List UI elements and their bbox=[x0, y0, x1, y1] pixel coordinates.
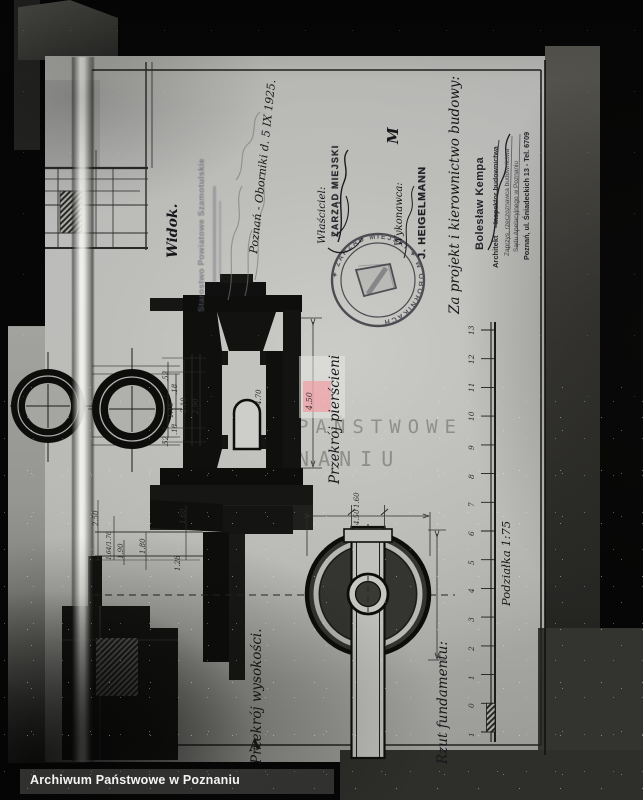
stamp-architect-title3: Zaprzys. rzeczoznawca budownictwa bbox=[505, 128, 512, 256]
dim-value: 1.90 bbox=[118, 539, 125, 559]
note-credit: Za projekt i kierownictwo budowy: bbox=[449, 62, 463, 314]
dim-value: 1.46 bbox=[168, 396, 175, 418]
dim-highlighted: 4.50 bbox=[306, 384, 314, 410]
archival-scan-page: PAŃSTWOWE ZNANIU bbox=[0, 0, 643, 800]
ruler-tick-label: 12 bbox=[468, 348, 476, 364]
label-foundation-plan: Rzut fundamentu: bbox=[437, 596, 451, 764]
ruler-tick-label: 5 bbox=[468, 549, 476, 565]
dim-value: .18 bbox=[172, 377, 179, 395]
stamp-architect-title2: Inspektor budownictwa bbox=[493, 124, 500, 224]
ruler-tick-label: 10 bbox=[468, 405, 476, 421]
dim-niche: 4.70 bbox=[256, 383, 263, 405]
ruler-tick-label: 3 bbox=[468, 606, 476, 622]
dim-value: 2.90 bbox=[193, 392, 200, 414]
paper-fold-highlight bbox=[72, 57, 94, 762]
dim-value: 1.28 bbox=[175, 551, 182, 571]
ruler-tick-label: 4 bbox=[468, 577, 476, 593]
ruler-tick-label: 13 bbox=[468, 319, 476, 335]
stamp-architect-title1: Architekt bbox=[492, 224, 500, 268]
label-rings-section: Przekrój pierścieni bbox=[329, 306, 343, 484]
dim-value: 2.10 bbox=[181, 391, 188, 413]
ruler-tick-label: 11 bbox=[468, 376, 476, 392]
dim-value: .52 bbox=[163, 364, 170, 382]
ruler-tick-label: 7 bbox=[468, 491, 476, 507]
stamp-starostwo-subline bbox=[219, 201, 221, 279]
dim-plan-outer: 4.50 bbox=[354, 508, 361, 525]
dim-value: .18 bbox=[172, 417, 179, 435]
dim-value: 1.64/1.76 bbox=[107, 518, 113, 560]
ruler-tick-label: 2 bbox=[468, 635, 476, 651]
round-seal-stamp: ✦ ZARZĄD MIEJSKI ✦ W OBORNIKACH bbox=[330, 231, 426, 327]
ruler-tick-label: 8 bbox=[468, 463, 476, 479]
ruler-tick-label: 9 bbox=[468, 434, 476, 450]
stamp-starostwo-subline bbox=[213, 186, 216, 282]
stamp-architect-address: Poznań, ul. Śniadeckich 13 - Tel. 6709 bbox=[523, 104, 530, 260]
dim-value: .52 bbox=[163, 429, 170, 447]
stamp-architect-name: Bolesław Kempa bbox=[475, 132, 486, 250]
dim-value: 1.60 bbox=[180, 504, 187, 524]
ruler-tick-label: 6 bbox=[468, 520, 476, 536]
archive-caption-text: Archiwum Państwowe w Poznaniu bbox=[30, 773, 240, 787]
ruler-tick-label: 0 bbox=[468, 692, 476, 708]
ruler-tick-label: 1 bbox=[468, 664, 476, 680]
label-contractor: Wykonawca: bbox=[395, 170, 405, 246]
dim-value: 1.80 bbox=[140, 534, 147, 554]
label-scale: Podziałka 1:75 bbox=[501, 490, 513, 606]
label-owner: Właściciel: bbox=[317, 164, 328, 244]
ruler-tick-label: 1 bbox=[468, 721, 476, 737]
ring-sections-drawing bbox=[10, 348, 182, 472]
label-view: Widok. bbox=[166, 196, 180, 258]
stamp-starostwo: Starostwo Powiatowe Szamotulskie bbox=[197, 142, 206, 312]
dim-value: 2.50 bbox=[93, 504, 100, 526]
stamp-architect-title4: Sądu Apelacyjnego w Poznaniu bbox=[514, 126, 521, 252]
dim-plan-inner: 1.60 bbox=[354, 491, 361, 508]
foundation-plan-drawing bbox=[307, 527, 429, 758]
stamp-owner: ZARZĄD MIEJSKI bbox=[331, 147, 340, 237]
scale-ruler-drawing bbox=[481, 322, 495, 742]
stamp-contractor: J. HEIGELMANN bbox=[417, 147, 428, 259]
mark-m-scribble: M bbox=[386, 110, 401, 144]
